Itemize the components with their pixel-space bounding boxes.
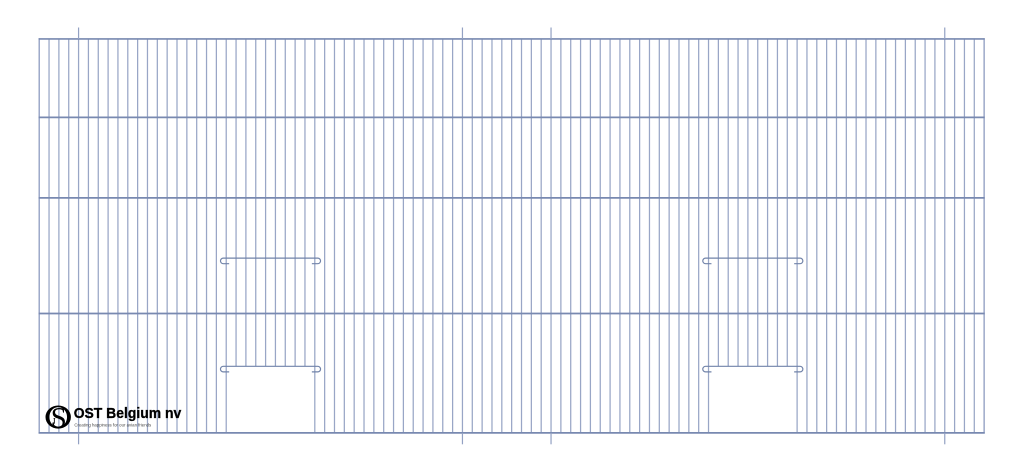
svg-text:OST Belgium nv: OST Belgium nv <box>74 405 182 422</box>
svg-text:Creating happiness for our avi: Creating happiness for our avian friends <box>74 422 152 427</box>
svg-text:J: J <box>52 417 56 427</box>
